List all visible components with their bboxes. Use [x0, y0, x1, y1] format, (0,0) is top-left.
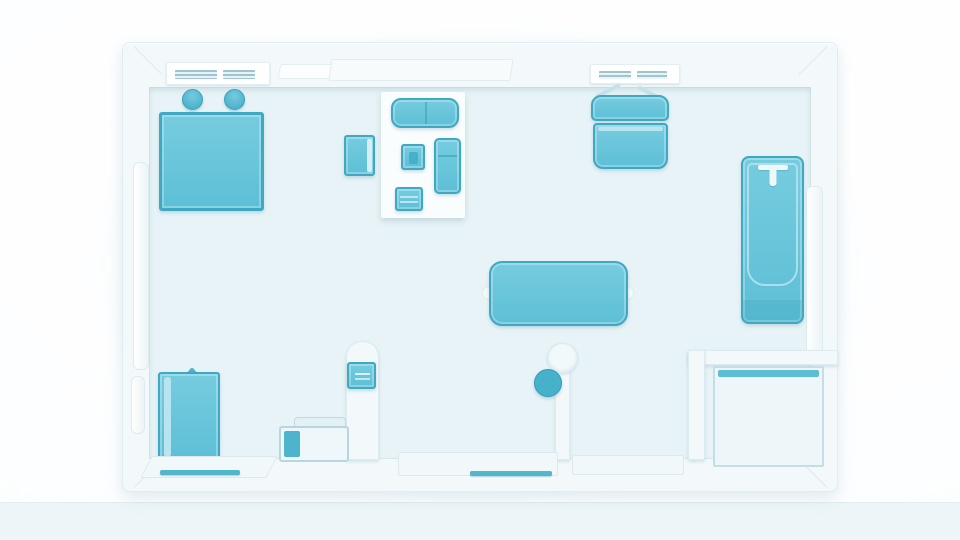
lounge-chair: [434, 138, 461, 194]
square-bed-mat: [159, 112, 264, 211]
tote-bag: [158, 372, 220, 462]
round-stool: [182, 89, 203, 110]
vent-slats: [223, 70, 255, 79]
vent-slats: [599, 71, 631, 79]
door-threshold: [470, 471, 552, 476]
window-sill-wing: [278, 64, 337, 79]
right-window: [806, 186, 823, 362]
top-window-sill: [328, 59, 513, 81]
shower-enclosure: [713, 366, 824, 467]
vent-icon: [590, 64, 680, 84]
round-stool: [224, 89, 245, 110]
coffee-table: [401, 144, 425, 170]
hanging-chair-seat: [593, 123, 668, 169]
teal-marker-dot: [534, 369, 562, 397]
vent-icon: [166, 62, 270, 85]
hanging-chair-backrest: [591, 95, 669, 121]
wall-control-panel: [347, 362, 376, 389]
door-threshold: [160, 470, 240, 475]
faucet-icon: [769, 169, 776, 186]
vent-slats: [175, 70, 217, 79]
shower-wall-top: [688, 350, 838, 365]
shower-wall-left: [688, 350, 705, 460]
media-console: [395, 187, 423, 211]
armchair: [344, 135, 375, 176]
partition-wall-left: [346, 341, 379, 460]
entry-step: [572, 455, 684, 475]
loveseat-sofa: [391, 98, 459, 128]
left-window-lower: [131, 376, 145, 434]
left-window: [133, 162, 149, 370]
bathtub: [741, 156, 804, 324]
floor-plan-scene: [0, 0, 960, 540]
dining-table: [489, 261, 628, 326]
vent-slats: [637, 71, 667, 79]
page-bottom-band: [0, 502, 960, 540]
storage-chest: [279, 426, 349, 462]
